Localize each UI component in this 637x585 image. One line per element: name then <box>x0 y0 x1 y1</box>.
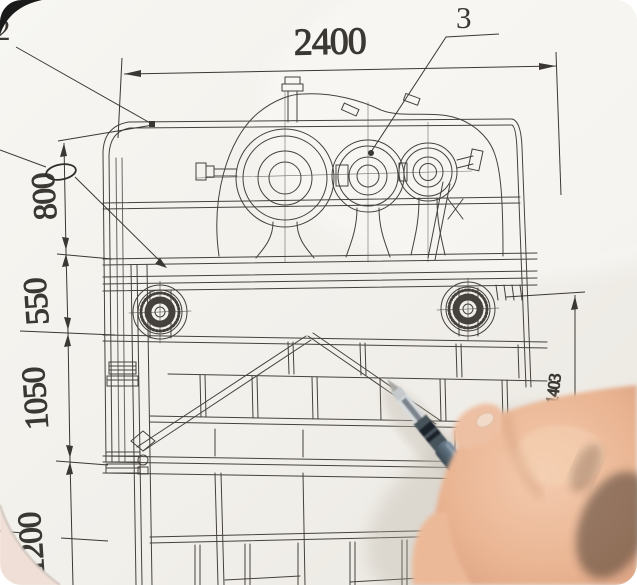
callout-label-3: 3 <box>456 0 471 35</box>
dim-label-550: 550 <box>17 277 56 326</box>
photo-of-technical-drawing: 2400 800 550 1050 1200 1403 2 3 <box>0 0 637 585</box>
dim-label-2400: 2400 <box>293 20 366 63</box>
drawing-photo-canvas: 2400 800 550 1050 1200 1403 2 3 <box>0 0 637 585</box>
dim-label-1050: 1050 <box>16 366 56 431</box>
